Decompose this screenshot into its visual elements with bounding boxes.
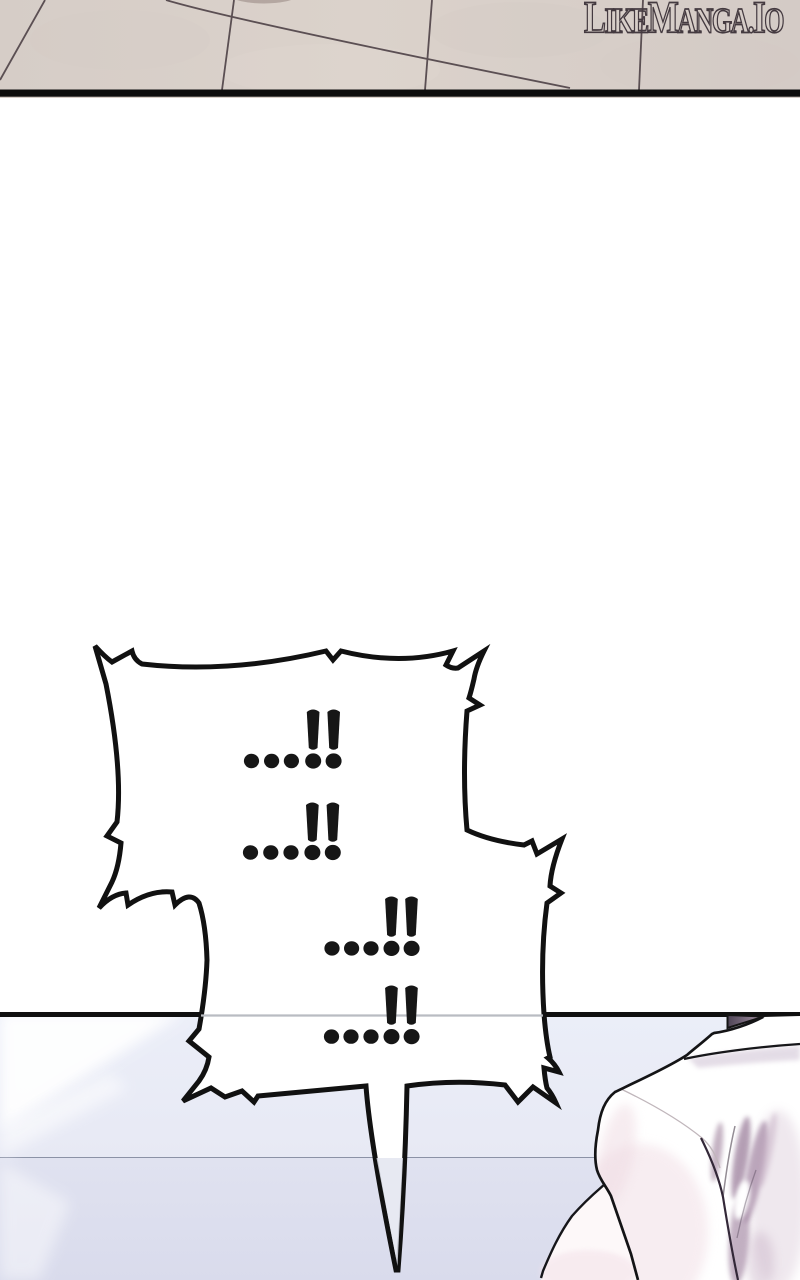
svg-text:LIKEMANGA.IO: LIKEMANGA.IO	[584, 0, 783, 43]
